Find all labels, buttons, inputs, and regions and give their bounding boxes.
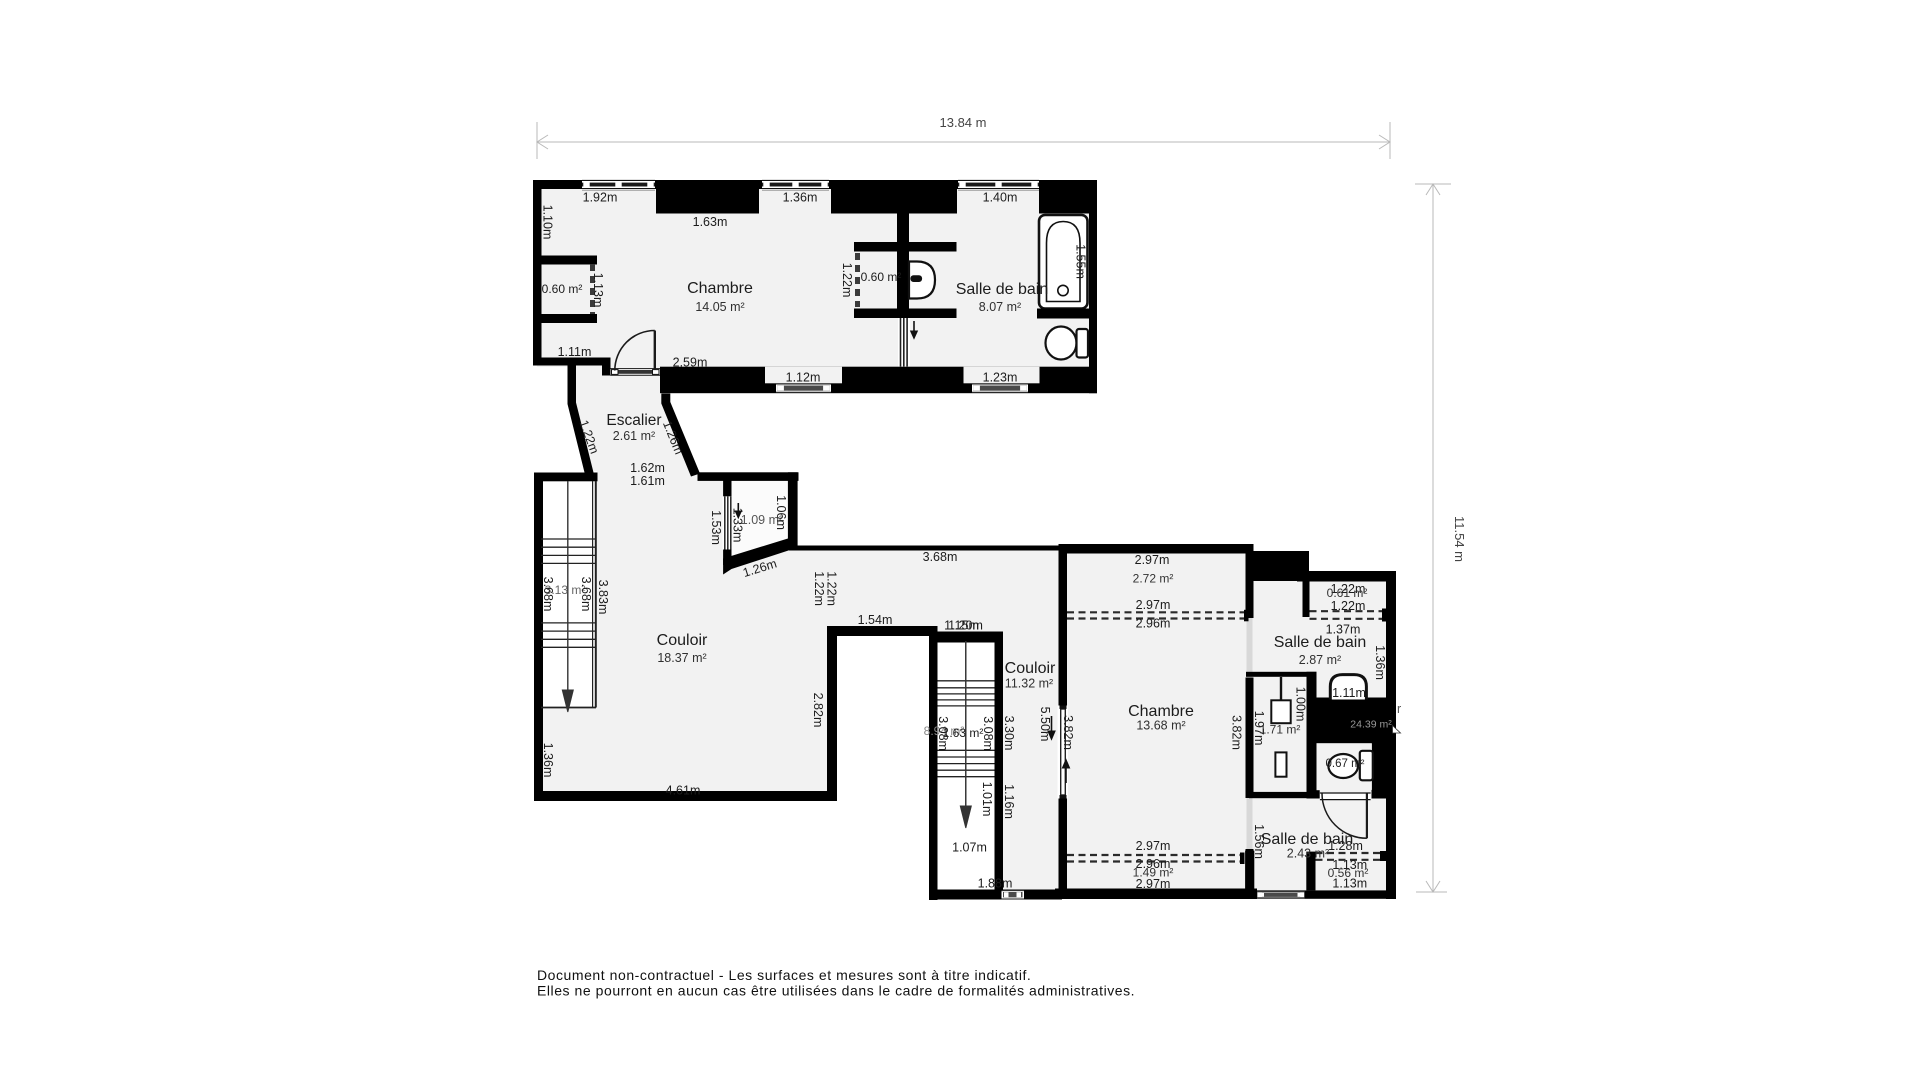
svg-text:Salle de bain: Salle de bain [956,281,1049,298]
svg-text:1.13m: 1.13m [591,273,605,308]
svg-text:Salle de bain: Salle de bain [1274,634,1367,651]
svg-text:1.61m: 1.61m [630,474,665,488]
svg-text:Couloir: Couloir [1005,660,1056,677]
svg-text:1.36m: 1.36m [783,191,818,205]
svg-text:1.62m: 1.62m [630,461,665,475]
svg-text:1.00m: 1.00m [1294,687,1308,722]
svg-text:3.82m: 3.82m [1061,715,1075,750]
svg-text:1.22m: 1.22m [1331,599,1366,613]
svg-text:4.61m: 4.61m [666,784,701,798]
svg-text:2.96m: 2.96m [1136,617,1171,631]
svg-text:8.07 m²: 8.07 m² [979,300,1021,314]
svg-text:3.30m: 3.30m [1002,716,1016,751]
svg-text:2.59m: 2.59m [673,356,708,370]
svg-text:3.82m: 3.82m [1229,715,1243,750]
svg-text:Couloir: Couloir [657,632,708,649]
svg-text:1.07m: 1.07m [952,841,987,855]
svg-text:3.68m: 3.68m [579,577,593,612]
svg-text:1.40m: 1.40m [983,191,1018,205]
svg-text:14.05 m²: 14.05 m² [695,300,744,314]
svg-text:13.68 m²: 13.68 m² [1136,719,1185,733]
svg-text:0.61 m²: 0.61 m² [1327,586,1368,600]
svg-text:1.53m: 1.53m [709,510,723,545]
svg-text:1.37m: 1.37m [1326,623,1361,637]
svg-text:2.61 m²: 2.61 m² [613,429,655,443]
svg-text:3.68m: 3.68m [541,577,555,612]
svg-text:2.87 m²: 2.87 m² [1299,653,1341,667]
svg-text:1.36m: 1.36m [1373,645,1387,680]
svg-text:3.83m: 3.83m [596,580,610,615]
svg-text:0.60 m²: 0.60 m² [542,282,583,296]
svg-text:11.32 m²: 11.32 m² [1005,677,1053,691]
svg-text:1.06m: 1.06m [774,495,788,530]
svg-text:2.82m: 2.82m [811,693,825,728]
svg-text:1.13m: 1.13m [1332,877,1367,891]
svg-text:1.22m: 1.22m [840,263,854,298]
svg-text:Document non-contractuel - Les: Document non-contractuel - Les surfaces … [537,967,1031,983]
svg-text:1.92m: 1.92m [583,191,618,205]
svg-text:Chambre: Chambre [687,280,753,297]
svg-text:0.67 m²: 0.67 m² [1326,758,1365,770]
svg-text:r: r [1397,702,1401,716]
svg-text:1.55m: 1.55m [1074,244,1088,279]
svg-text:1.22m: 1.22m [825,571,839,606]
svg-text:1.36m: 1.36m [541,743,555,778]
svg-text:Escalier: Escalier [606,412,661,429]
svg-text:1.01m: 1.01m [980,782,994,817]
svg-text:1.16m: 1.16m [1002,784,1016,819]
svg-text:1.28m: 1.28m [1328,839,1363,853]
svg-text:Elles ne pourront en aucun cas: Elles ne pourront en aucun cas être util… [537,983,1135,999]
svg-text:1.88m: 1.88m [978,877,1013,891]
svg-text:1.20m: 1.20m [948,619,983,633]
svg-text:1.10m: 1.10m [541,205,555,240]
svg-text:1.11m: 1.11m [558,345,592,359]
svg-text:0.60 m²: 0.60 m² [861,270,902,284]
svg-text:1.12m: 1.12m [786,371,821,385]
svg-text:1.22m: 1.22m [812,571,826,606]
svg-text:3.68m: 3.68m [923,550,958,564]
svg-text:1.23m: 1.23m [983,371,1018,385]
svg-text:1.63m: 1.63m [693,215,728,229]
svg-text:1.71 m²: 1.71 m² [1260,723,1301,737]
svg-text:3.08m: 3.08m [936,716,950,751]
svg-text:2.97m: 2.97m [1136,839,1171,853]
svg-text:2.97m: 2.97m [1136,877,1171,891]
svg-text:1.56m: 1.56m [1252,824,1266,859]
svg-text:18.37 m²: 18.37 m² [657,651,706,665]
svg-text:2.97m: 2.97m [1136,598,1171,612]
svg-text:2.72 m²: 2.72 m² [1133,572,1174,586]
svg-text:2.97m: 2.97m [1135,553,1170,567]
svg-text:2.43 m²: 2.43 m² [1287,847,1329,861]
svg-text:11.54 m: 11.54 m [1452,516,1467,562]
svg-text:Chambre: Chambre [1128,703,1194,720]
svg-text:13.84 m: 13.84 m [940,115,987,130]
svg-text:3.08m: 3.08m [981,716,995,751]
svg-text:1.11m: 1.11m [1332,686,1366,700]
svg-text:1.54m: 1.54m [858,613,893,627]
svg-text:24.39 m²: 24.39 m² [1350,719,1392,731]
